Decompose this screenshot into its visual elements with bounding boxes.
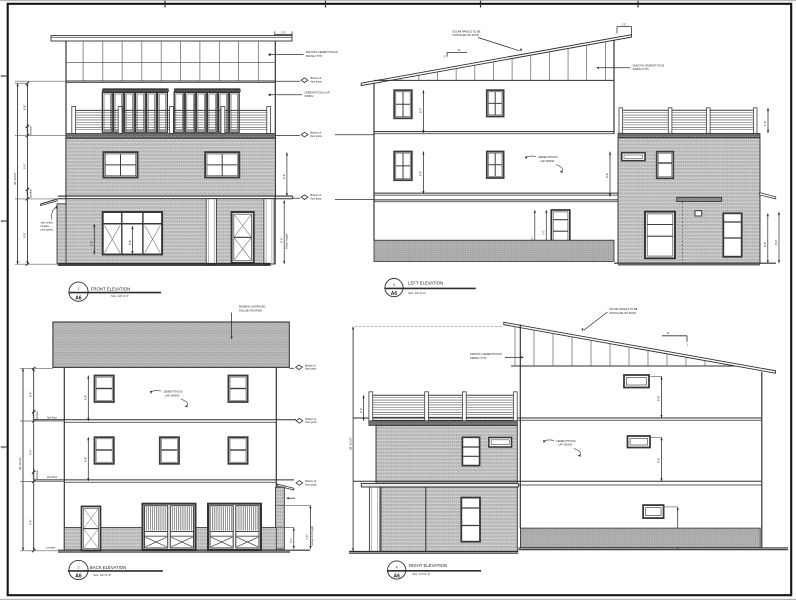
svg-text:(see space): (see space): [41, 228, 54, 231]
svg-text:Porch height: Porch height: [285, 234, 289, 249]
svg-text:RIGHT ELEVATION: RIGHT ELEVATION: [409, 563, 447, 568]
svg-text:structure: structure: [30, 188, 33, 198]
svg-text:SIDING (TYP): SIDING (TYP): [470, 356, 487, 360]
svg-text:8'-6": 8'-6": [22, 105, 26, 110]
svg-text:3'-4": 3'-4": [290, 538, 293, 543]
svg-text:A6: A6: [75, 574, 82, 580]
svg-text:3rd floor: 3rd floor: [47, 415, 57, 419]
svg-text:INSTALLED ON ROOF: INSTALLED ON ROOF: [610, 311, 637, 315]
svg-text:structure: structure: [36, 410, 39, 420]
svg-text:9 1/4" floor: 9 1/4" floor: [33, 468, 36, 479]
svg-text:BACK ELEVATION: BACK ELEVATION: [90, 565, 126, 570]
svg-text:7'-0": 7'-0": [305, 535, 309, 540]
svg-text:SIDING: SIDING: [304, 94, 313, 98]
svg-text:9 1/4" floor: 9 1/4" floor: [26, 124, 29, 135]
svg-text:9 1/4" floor: 9 1/4" floor: [26, 187, 29, 198]
svg-text:SCL. 1/4"=1'-0": SCL. 1/4"=1'-0": [111, 294, 129, 298]
svg-text:MINERAL-SURFACED: MINERAL-SURFACED: [239, 305, 266, 309]
svg-text:SCL. 1/4"=1'-0": SCL. 1/4"=1'-0": [408, 291, 426, 295]
svg-text:6'-8": 6'-8": [657, 458, 661, 463]
svg-text:4: 4: [396, 565, 398, 569]
svg-text:floor joists: floor joists: [311, 198, 323, 201]
svg-text:SMOOTH CEMENTITIOUS: SMOOTH CEMENTITIOUS: [306, 50, 338, 54]
svg-text:floor joists: floor joists: [311, 135, 323, 138]
svg-text:4'-0": 4'-0": [359, 408, 363, 413]
svg-text:2'-0": 2'-0": [281, 32, 286, 34]
svg-text:structure: structure: [36, 469, 39, 479]
svg-text:6'-8": 6'-8": [763, 242, 767, 247]
svg-text:INSTALLED ON ROOF: INSTALLED ON ROOF: [453, 33, 480, 37]
svg-text:floor joists: floor joists: [305, 483, 317, 486]
svg-text:SCL. 1/4"=1'-0": SCL. 1/4"=1'-0": [413, 572, 431, 576]
svg-text:SIDING (TYP): SIDING (TYP): [306, 54, 323, 58]
svg-text:FRONT ELEVATION: FRONT ELEVATION: [91, 287, 130, 292]
svg-text:LEFT ELEVATION: LEFT ELEVATION: [408, 280, 443, 285]
svg-text:6'-8": 6'-8": [419, 171, 423, 176]
svg-text:LAP SIDING: LAP SIDING: [165, 393, 180, 397]
svg-text:structure: structure: [30, 125, 33, 135]
svg-text:floor joists: floor joists: [311, 81, 323, 84]
svg-text:2nd floor: 2nd floor: [47, 475, 58, 479]
svg-text:8'-0": 8'-0": [774, 240, 778, 245]
svg-text:CEMENTITIOUS: CEMENTITIOUS: [556, 439, 576, 443]
svg-text:SMOOTH CEMENTITIOUS: SMOOTH CEMENTITIOUS: [633, 63, 665, 67]
svg-text:LAP SIDING: LAP SIDING: [540, 159, 555, 163]
svg-text:6'-8": 6'-8": [84, 457, 88, 462]
svg-text:1st floor: 1st floor: [46, 545, 56, 549]
svg-text:A6: A6: [75, 295, 82, 301]
svg-text:SCL. 1/4"=1'-0": SCL. 1/4"=1'-0": [93, 573, 111, 577]
svg-text:6'-8": 6'-8": [657, 396, 661, 401]
svg-text:9'-0": 9'-0": [29, 450, 33, 455]
svg-text:2'-0": 2'-0": [622, 24, 627, 26]
svg-text:ROLLED ROOFING: ROLLED ROOFING: [239, 308, 262, 312]
svg-text:SOLAR PANELS TO BE: SOLAR PANELS TO BE: [610, 307, 638, 311]
svg-text:38'-10 1/2": 38'-10 1/2": [348, 437, 352, 450]
svg-text:SIDING (TYP): SIDING (TYP): [633, 67, 650, 71]
svg-text:9'-0": 9'-0": [29, 520, 33, 525]
svg-text:1: 1: [78, 287, 80, 291]
svg-text:A6: A6: [391, 291, 398, 297]
svg-text:CEMENTITIOUS: CEMENTITIOUS: [163, 390, 183, 394]
svg-text:6'-8": 6'-8": [84, 395, 88, 400]
svg-text:floor joists: floor joists: [305, 421, 317, 424]
svg-text:38'-10 1/2": 38'-10 1/2": [18, 457, 22, 470]
svg-text:6'-8": 6'-8": [283, 174, 286, 179]
svg-text:9'-0": 9'-0": [22, 233, 26, 238]
svg-text:8'-0": 8'-0": [29, 392, 33, 397]
svg-text:LAP SIDING: LAP SIDING: [558, 443, 573, 447]
svg-text:SOLAR PANELS TO BE: SOLAR PANELS TO BE: [453, 29, 481, 33]
svg-text:5'-0": 5'-0": [90, 241, 94, 246]
svg-text:6'-8": 6'-8": [128, 240, 132, 245]
svg-text:8'-0": 8'-0": [419, 108, 423, 113]
svg-text:7'-0": 7'-0": [543, 230, 546, 235]
svg-text:3: 3: [393, 283, 395, 287]
svg-text:A6: A6: [393, 574, 400, 580]
svg-text:floor joists: floor joists: [305, 368, 317, 371]
svg-text:2: 2: [78, 565, 80, 569]
svg-text:SMOOTH CEMENTITIOUS: SMOOTH CEMENTITIOUS: [470, 352, 502, 356]
svg-text:9'-0": 9'-0": [22, 164, 26, 169]
svg-text:8'-0": 8'-0": [279, 238, 283, 243]
svg-text:CEMENTITIOUS: CEMENTITIOUS: [538, 155, 558, 159]
svg-text:9 1/4" floor: 9 1/4" floor: [33, 409, 36, 420]
svg-text:CEMENTITIOUS LAP: CEMENTITIOUS LAP: [304, 90, 329, 94]
svg-text:4'-0": 4'-0": [763, 121, 767, 126]
svg-text:38'-10 1/2": 38'-10 1/2": [13, 172, 17, 185]
svg-text:6'-8": 6'-8": [605, 173, 609, 178]
svg-text:Garage door height: Garage door height: [311, 526, 314, 546]
